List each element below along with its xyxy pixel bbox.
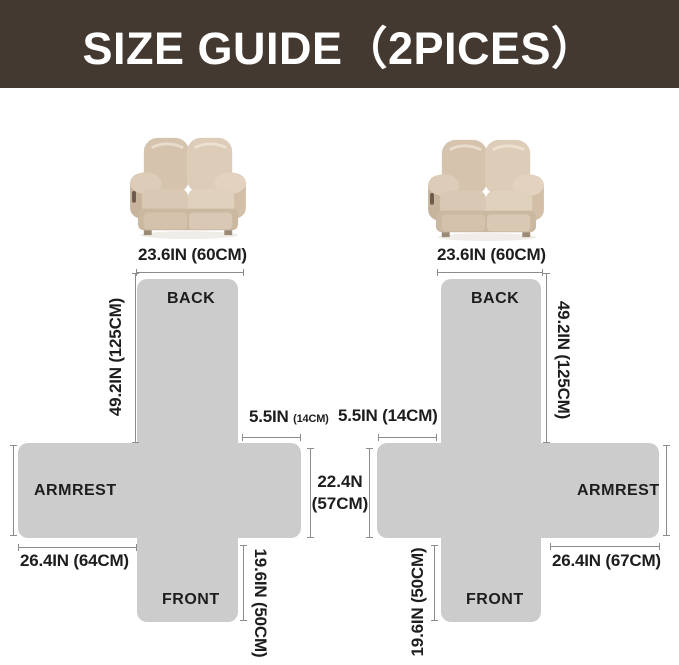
right-gap-label: 5.5IN (14CM) bbox=[338, 406, 438, 426]
right-back-height-line bbox=[546, 273, 547, 443]
right-armrest-height-line bbox=[666, 445, 667, 536]
left-armrest-label: ARMREST bbox=[34, 482, 117, 500]
left-top-width-label: 23.6IN (60CM) bbox=[138, 245, 247, 265]
right-front-length-line bbox=[434, 545, 435, 621]
left-top-width-line bbox=[136, 272, 244, 273]
left-armrest-height-line bbox=[13, 445, 14, 536]
right-top-width-line bbox=[437, 272, 543, 273]
size-guide-infographic: SIZE GUIDE（2PICES） bbox=[0, 0, 679, 665]
left-gap-line bbox=[242, 437, 301, 438]
left-front-label: FRONT bbox=[162, 591, 220, 609]
right-armrest-length-line bbox=[550, 546, 660, 547]
right-armrest-length-label: 26.4IN (67CM) bbox=[552, 551, 661, 571]
left-gap-label: 5.5IN (14CM) bbox=[249, 407, 329, 427]
right-armrest-label: ARMREST bbox=[577, 482, 660, 500]
left-armrest-length-label: 26.4IN (64CM) bbox=[20, 551, 129, 571]
right-back-label: BACK bbox=[471, 290, 519, 308]
left-back-height-line bbox=[135, 273, 136, 443]
page-title: SIZE GUIDE（2PICES） bbox=[82, 12, 596, 77]
left-back-label: BACK bbox=[167, 290, 215, 308]
header-banner: SIZE GUIDE（2PICES） bbox=[0, 0, 679, 88]
left-front-length-line bbox=[243, 545, 244, 621]
left-armrest-length-line bbox=[18, 547, 137, 548]
right-gap-line bbox=[378, 437, 437, 438]
right-front-label: FRONT bbox=[466, 591, 524, 609]
loveseat-recliner-image-left bbox=[124, 134, 252, 242]
right-top-width-label: 23.6IN (60CM) bbox=[437, 245, 546, 265]
middle-width-label: 22.4N (57CM) bbox=[305, 471, 375, 515]
loveseat-recliner-image-right bbox=[422, 136, 550, 244]
